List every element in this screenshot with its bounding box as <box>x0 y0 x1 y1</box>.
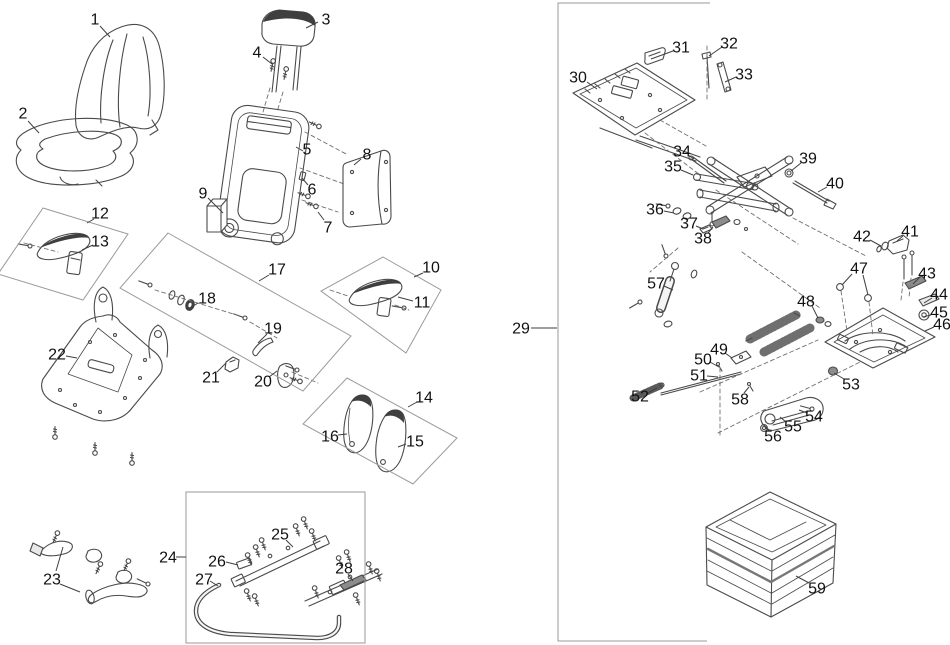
part-label-5: 5 <box>303 142 312 159</box>
part-label-35: 35 <box>664 159 682 176</box>
leader-line-16 <box>338 434 347 435</box>
leader-line-23 <box>56 547 63 571</box>
part-label-12: 12 <box>91 206 109 223</box>
leader-line-59 <box>796 576 809 583</box>
part-label-58: 58 <box>731 392 749 409</box>
part-back-frame-fasteners <box>297 120 348 212</box>
part-label-4: 4 <box>253 45 262 62</box>
part-pin-lever <box>748 383 754 392</box>
part-label-6: 6 <box>308 182 317 199</box>
part-back-frame <box>215 103 311 247</box>
part-label-46: 46 <box>933 317 950 334</box>
part-label-28: 28 <box>335 561 353 578</box>
part-armrest-right <box>330 279 409 316</box>
part-label-25: 25 <box>271 527 289 544</box>
part-label-17: 17 <box>268 262 286 279</box>
leader-line-2 <box>28 121 39 133</box>
part-springs <box>746 313 810 352</box>
leader-line-11 <box>398 297 413 301</box>
part-headrest-screws <box>263 58 289 112</box>
part-stop-rod <box>702 46 711 100</box>
part-label-13: 13 <box>91 234 109 251</box>
diagram-canvas: 1234567891011121314151617181920212223242… <box>0 0 950 645</box>
part-label-57: 57 <box>647 276 665 293</box>
leader-line-31 <box>651 51 673 59</box>
part-label-55: 55 <box>784 419 802 436</box>
part-bellows <box>706 492 836 617</box>
part-label-33: 33 <box>735 67 753 84</box>
part-scissor-linkage <box>697 156 793 231</box>
part-label-29: 29 <box>512 321 530 338</box>
leader-line-47 <box>863 275 868 295</box>
part-label-21: 21 <box>202 370 220 387</box>
part-label-49: 49 <box>710 342 728 359</box>
part-label-32: 32 <box>720 36 738 53</box>
part-label-52: 52 <box>631 389 649 406</box>
part-label-39: 39 <box>799 151 817 168</box>
part-pin-small <box>717 363 723 372</box>
part-label-10: 10 <box>422 260 440 277</box>
part-label-8: 8 <box>363 147 372 164</box>
leader-line-35 <box>681 170 693 175</box>
part-tilt-levers <box>30 530 151 605</box>
part-label-43: 43 <box>918 266 936 283</box>
part-label-38: 38 <box>694 231 712 248</box>
part-label-42: 42 <box>853 229 871 246</box>
part-label-53: 53 <box>842 377 860 394</box>
part-label-27: 27 <box>195 572 213 589</box>
part-headrest <box>262 10 315 92</box>
leader-line-22 <box>66 356 77 358</box>
part-slide-bracket <box>712 216 730 228</box>
part-label-22: 22 <box>48 347 66 364</box>
part-suspension-base-pan <box>825 308 935 368</box>
part-label-54: 54 <box>805 409 823 426</box>
part-label-50: 50 <box>694 352 712 369</box>
part-link-strap <box>717 62 731 92</box>
leader-line-23 <box>60 584 80 592</box>
part-label-15: 15 <box>406 434 424 451</box>
part-label-14: 14 <box>415 390 433 407</box>
leader-line-51 <box>707 376 718 377</box>
group-box-17 <box>120 233 351 391</box>
part-label-23: 23 <box>43 572 61 589</box>
part-armrest-left <box>18 233 90 275</box>
part-backrest-cushion <box>75 24 164 138</box>
part-label-59: 59 <box>808 581 826 598</box>
part-guide-sleeve <box>207 199 227 232</box>
parts-diagram: 1234567891011121314151617181920212223242… <box>0 0 950 645</box>
part-label-19: 19 <box>264 321 282 338</box>
part-label-56: 56 <box>764 429 782 446</box>
part-label-30: 30 <box>569 70 587 87</box>
part-bearing <box>816 317 831 326</box>
part-seat-pan <box>42 287 168 465</box>
part-label-44: 44 <box>930 287 948 304</box>
part-label-26: 26 <box>208 554 226 571</box>
part-label-18: 18 <box>198 291 216 308</box>
part-pivot-cover <box>645 48 666 65</box>
part-label-3: 3 <box>322 12 331 29</box>
part-label-16: 16 <box>321 429 339 446</box>
part-armrest-cover-outer <box>376 410 406 472</box>
part-armrest-cover-inner <box>344 395 373 453</box>
part-label-7: 7 <box>324 220 333 237</box>
part-label-41: 41 <box>901 224 919 241</box>
part-ring <box>919 310 929 320</box>
part-label-40: 40 <box>826 176 844 193</box>
part-label-9: 9 <box>199 186 208 203</box>
part-label-24: 24 <box>159 550 177 567</box>
part-label-31: 31 <box>672 40 690 57</box>
part-label-51: 51 <box>690 368 708 385</box>
part-label-11: 11 <box>414 295 431 312</box>
leader-line-42 <box>870 240 881 246</box>
part-label-48: 48 <box>797 294 815 311</box>
part-spring-bracket <box>731 351 751 364</box>
part-label-1: 1 <box>91 12 100 29</box>
part-label-36: 36 <box>646 202 664 219</box>
part-label-47: 47 <box>850 261 868 278</box>
part-label-2: 2 <box>19 106 28 123</box>
part-label-20: 20 <box>254 374 272 391</box>
part-seat-rails <box>196 516 382 638</box>
